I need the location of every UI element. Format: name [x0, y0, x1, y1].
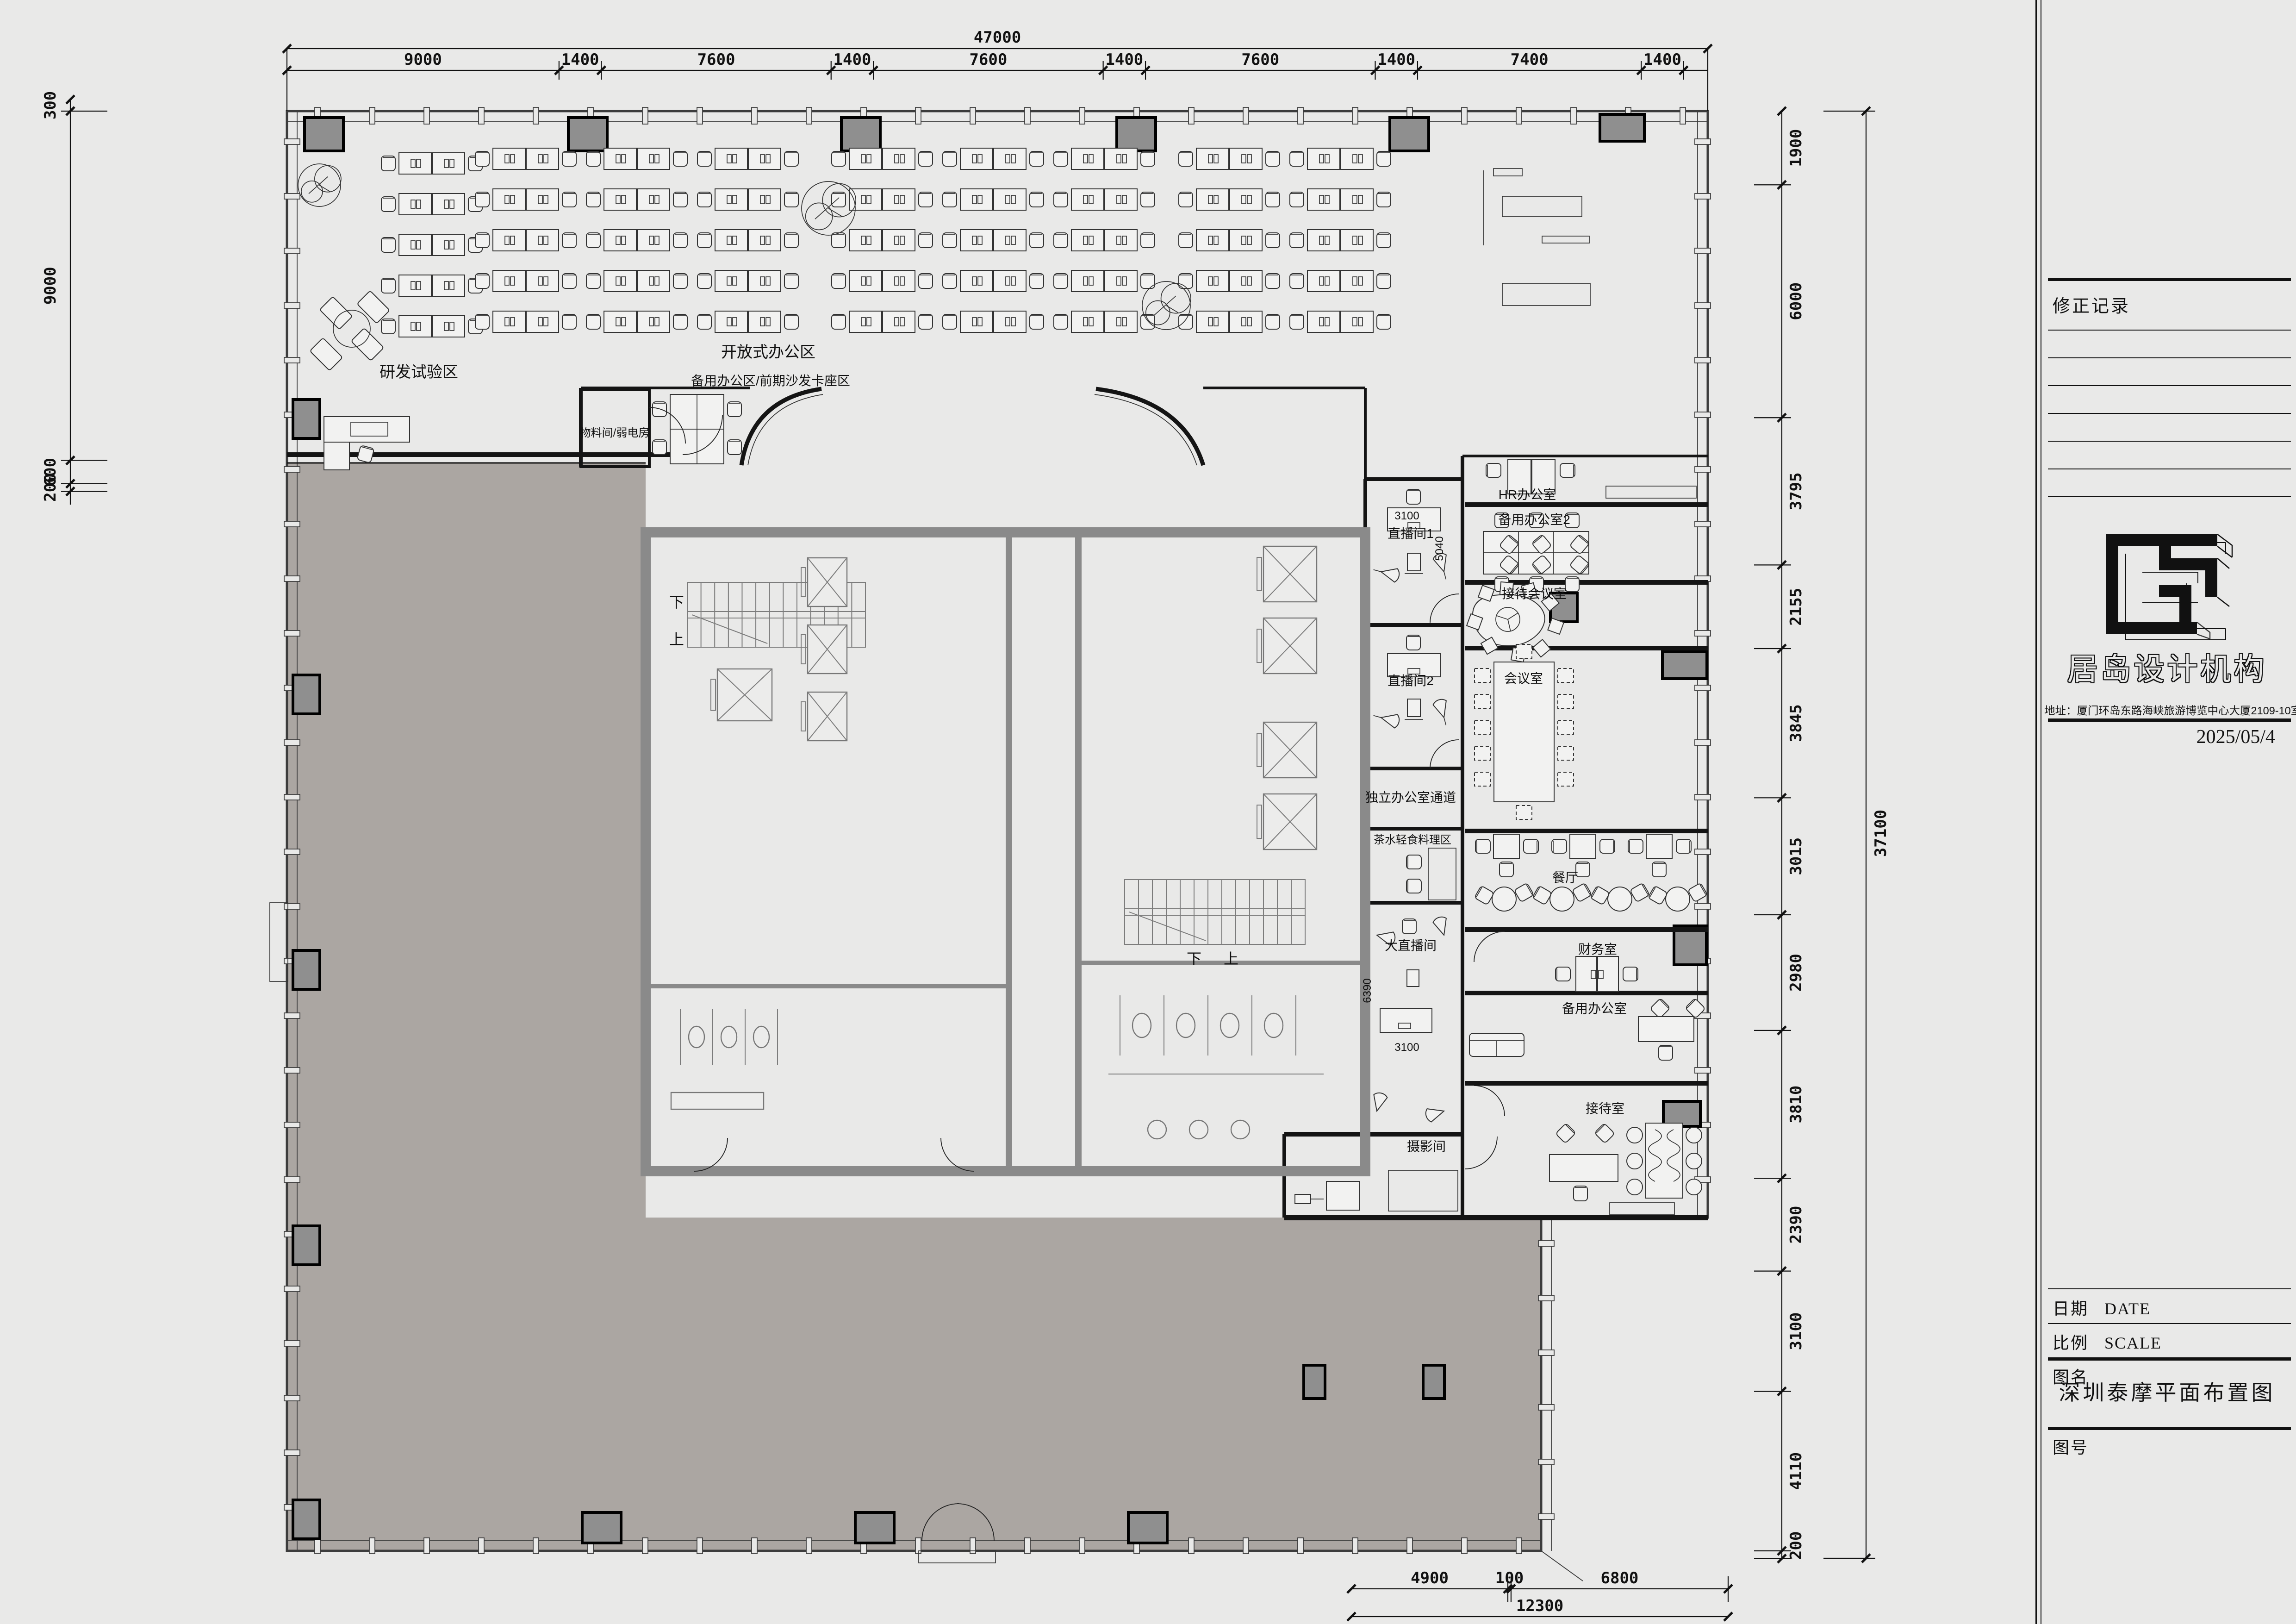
- svg-text:3100: 3100: [1787, 1312, 1805, 1350]
- stair2-up-label: 上: [1224, 950, 1238, 967]
- issue-date: 2025/05/4: [2196, 726, 2275, 748]
- room-label-backup-area: 备用办公区/前期沙发卡座区: [691, 374, 850, 388]
- room-label-live2: 直播间2: [1388, 674, 1434, 688]
- room-label-rnd: 研发试验区: [380, 363, 458, 381]
- room-label-photo: 摄影间: [1407, 1139, 1446, 1154]
- svg-text:7600: 7600: [697, 50, 735, 69]
- company-address: 地址：厦门环岛东路海峡旅游博览中心大厦2109-10室: [2044, 702, 2294, 718]
- room-label-open-office: 开放式办公区: [721, 344, 815, 361]
- company-name: 居岛设计机构: [2037, 644, 2296, 689]
- svg-text:200: 200: [41, 473, 60, 501]
- svg-text:3810: 3810: [1787, 1086, 1805, 1124]
- revision-divider: [2048, 278, 2291, 281]
- svg-text:47000: 47000: [974, 28, 1021, 47]
- svg-text:2155: 2155: [1787, 588, 1805, 626]
- room-label-live1: 直播间1: [1388, 526, 1434, 541]
- svg-text:1400: 1400: [561, 50, 599, 69]
- room-label-hr: HR办公室: [1499, 487, 1556, 502]
- svg-text:2980: 2980: [1787, 954, 1805, 992]
- svg-text:3015: 3015: [1787, 837, 1805, 875]
- revision-title: 修正记录: [2053, 292, 2130, 317]
- svg-text:200: 200: [1787, 1531, 1805, 1560]
- svg-text:100: 100: [1495, 1569, 1524, 1587]
- svg-text:7400: 7400: [1511, 50, 1549, 69]
- room-label-finance: 财务室: [1578, 942, 1617, 956]
- room-label-reception: 接待室: [1586, 1101, 1624, 1116]
- svg-text:1400: 1400: [834, 50, 871, 69]
- dim-big-live-height: 6390: [1361, 978, 1374, 1003]
- room-label-dining: 餐厅: [1552, 870, 1578, 885]
- stair-down-label: 下: [669, 594, 684, 611]
- room-label-backup: 备用办公室: [1562, 1001, 1627, 1016]
- room-label-material: 物料间/弱电房: [580, 427, 650, 439]
- svg-text:3795: 3795: [1787, 472, 1805, 510]
- drawing-sheet: 研发试验区 开放式办公区 备用办公区/前期沙发卡座区 物料间/弱电房 直播间1 …: [0, 0, 2296, 1624]
- company-logo: [2102, 531, 2236, 640]
- svg-text:4110: 4110: [1787, 1452, 1805, 1490]
- room-label-tea: 茶水轻食料理区: [1374, 834, 1451, 846]
- title-block: 修正记录 居岛设计机构 地址：厦门环岛东路海峡旅游博览中心大厦2109-10室 …: [2035, 0, 2296, 1624]
- svg-text:7600: 7600: [1241, 50, 1279, 69]
- svg-text:1900: 1900: [1787, 129, 1805, 167]
- service-core: [646, 532, 1365, 1171]
- svg-text:12300: 12300: [1516, 1597, 1563, 1615]
- svg-text:4900: 4900: [1411, 1569, 1449, 1587]
- svg-text:1400: 1400: [1643, 50, 1681, 69]
- stair2-down-label: 下: [1187, 950, 1201, 967]
- field-scale: 比例SCALE: [2053, 1330, 2162, 1354]
- room-label-backup2: 备用办公室2: [1498, 512, 1570, 527]
- room-label-reception-meeting: 接待会议室: [1502, 587, 1567, 601]
- dim-big-live-width: 3100: [1394, 1041, 1419, 1054]
- facade-notch: [270, 903, 288, 981]
- svg-text:3845: 3845: [1787, 704, 1805, 742]
- room-label-meeting: 会议室: [1504, 671, 1543, 686]
- svg-text:7600: 7600: [969, 50, 1007, 69]
- unfitted-floor-area: [287, 463, 1541, 1551]
- room-label-corridor: 独立办公室通道: [1365, 790, 1456, 805]
- svg-text:300: 300: [41, 91, 60, 119]
- svg-text:9000: 9000: [404, 50, 442, 69]
- svg-text:37100: 37100: [1872, 810, 1890, 857]
- field-date: 日期DATE: [2053, 1295, 2151, 1319]
- svg-text:1400: 1400: [1377, 50, 1415, 69]
- dim-live1-height: 5040: [1433, 536, 1446, 561]
- svg-text:2390: 2390: [1787, 1206, 1805, 1243]
- svg-text:1400: 1400: [1105, 50, 1143, 69]
- field-drawing-number: 图号: [2053, 1434, 2089, 1458]
- svg-text:6000: 6000: [1787, 282, 1805, 320]
- dim-live1-width: 3100: [1394, 510, 1419, 522]
- stair-up-label: 上: [669, 631, 684, 648]
- svg-text:9000: 9000: [41, 267, 60, 305]
- floor-plan-canvas: 研发试验区 开放式办公区 备用办公区/前期沙发卡座区 物料间/弱电房 直播间1 …: [0, 0, 2296, 1624]
- room-label-big-live: 大直播间: [1385, 938, 1437, 953]
- drawing-title: 深圳泰摩平面布置图: [2037, 1376, 2296, 1406]
- svg-text:6800: 6800: [1601, 1569, 1639, 1587]
